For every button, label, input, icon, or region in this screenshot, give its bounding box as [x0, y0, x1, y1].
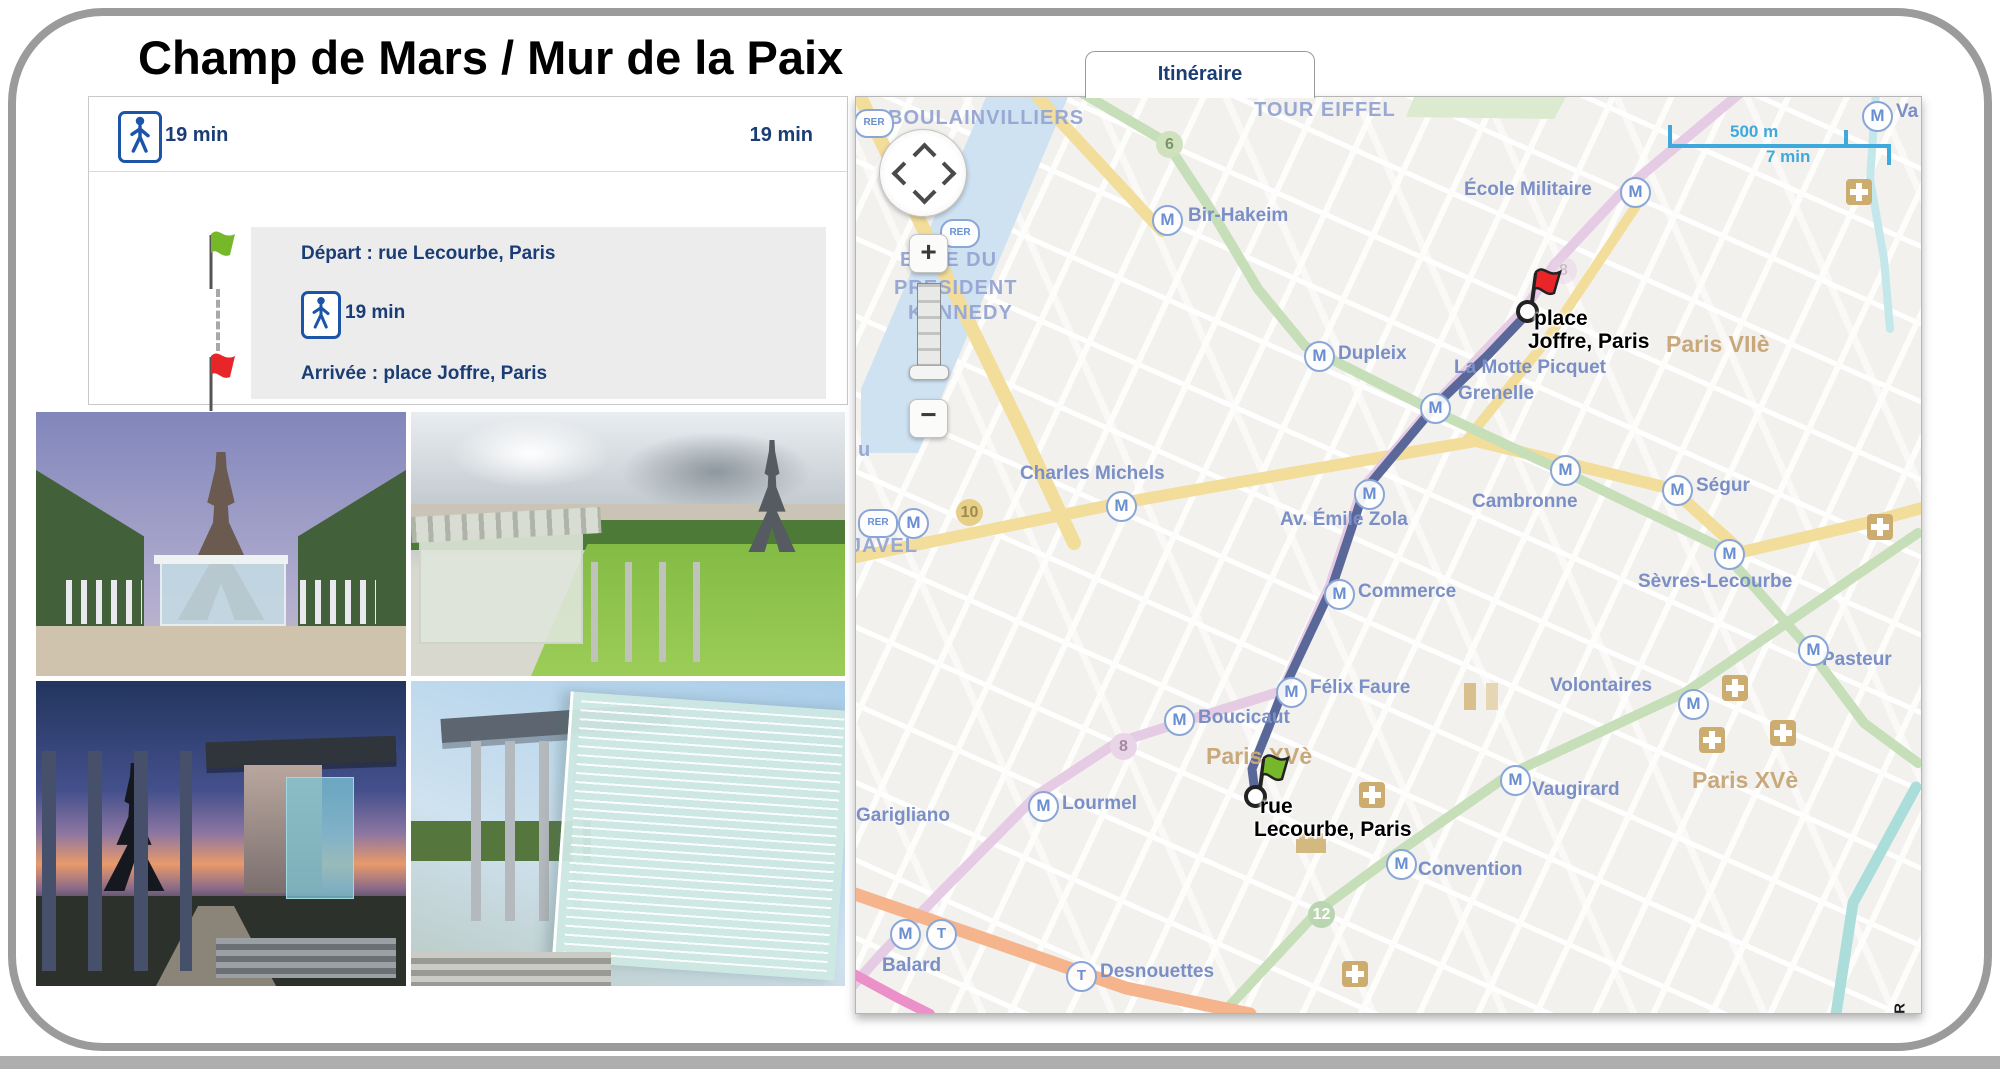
arrival-marker-label-line2: Joffre, Paris	[1528, 330, 1649, 354]
photo-wall-of-peace-glass-closeup	[411, 681, 845, 986]
rer-badge[interactable]: RER	[858, 509, 898, 538]
departure-marker-label-line1: rue	[1260, 795, 1293, 819]
station-label-bir-hakeim: Bir-Hakeim	[1188, 205, 1288, 227]
hospital-icon	[1770, 720, 1796, 746]
route-connector-line	[216, 289, 220, 351]
m-badge-vaugirard[interactable]: M	[1500, 765, 1531, 796]
rer-badge[interactable]: RER	[855, 109, 894, 138]
station-label-av-mile-zola: Av. Émile Zola	[1280, 509, 1408, 531]
columns-left	[66, 580, 142, 624]
ground	[36, 626, 406, 676]
map-copyright: ©STIF 2015, Données STIF, IGN BDTopo, IA…	[1892, 1003, 1909, 1014]
itinerary-summary-row[interactable]: 19 min 19 min	[89, 97, 847, 172]
m-badge-balard[interactable]: M	[890, 919, 921, 950]
slide: Champ de Mars / Mur de la Paix 19 min 19…	[0, 0, 2000, 1069]
columns-right	[300, 580, 376, 624]
m-badge--cole-militaire[interactable]: M	[1620, 177, 1651, 208]
m-badge-grenelle[interactable]: M	[1420, 393, 1451, 424]
itinerary-panel: 19 min 19 min Départ : rue Lecourbe, Par…	[88, 96, 848, 405]
photo-wall-of-peace-eiffel-front	[36, 412, 406, 676]
steel-columns	[591, 562, 711, 662]
itinerary-detail-box: Départ : rue Lecourbe, Paris 19 min Arri…	[251, 227, 826, 399]
metro-line-12-badge: 12	[1308, 901, 1335, 928]
poi-building-icon	[1464, 683, 1476, 710]
hospital-icon	[1867, 514, 1893, 540]
departure-marker-label-line2: Lecourbe, Paris	[1254, 818, 1412, 842]
station-label-boucicaut: Boucicaut	[1198, 707, 1290, 729]
engraved-glass-wall	[552, 691, 845, 980]
station-label-desnouettes: Desnouettes	[1100, 961, 1214, 983]
station-label-lourmel: Lourmel	[1062, 793, 1137, 815]
area-label-tour-eiffel: TOUR EIFFEL	[1254, 99, 1396, 122]
m-badge-s-vres-lecourbe[interactable]: M	[1714, 539, 1745, 570]
scale-time: 7 min	[1766, 147, 1810, 167]
metro-line-10-badge: 10	[956, 499, 983, 526]
station-label-grenelle: Grenelle	[1458, 383, 1534, 405]
district-label-paris-vii-: Paris VIIè	[1666, 331, 1770, 358]
arrival-flag-icon	[197, 349, 245, 413]
station-label-la-motte-picquet: La Motte Picquet	[1454, 357, 1606, 379]
m-badge-f-lix-faure[interactable]: M	[1276, 677, 1307, 708]
m-badge-charles-michels[interactable]: M	[1106, 491, 1137, 522]
station-label-charles-michels: Charles Michels	[1020, 463, 1165, 485]
pan-down-icon[interactable]	[912, 180, 936, 204]
glass-monument	[160, 560, 286, 626]
bottom-edge-bar	[0, 1056, 2000, 1069]
leg-duration: 19 min	[345, 302, 405, 324]
steps	[411, 952, 611, 986]
hospital-icon	[1846, 179, 1872, 205]
m-badge-commerce[interactable]: M	[1324, 579, 1355, 610]
glass-panel	[286, 777, 354, 899]
zoom-slider-track[interactable]	[917, 283, 941, 371]
map-scale-bar: 500 m 7 min	[1668, 123, 1891, 169]
hospital-icon	[1342, 961, 1368, 987]
metro-line-8-badge: 8	[1110, 733, 1137, 760]
station-label-s-vres-lecourbe: Sèvres-Lecourbe	[1638, 571, 1792, 593]
hospital-icon	[1699, 727, 1725, 753]
summary-total-duration: 19 min	[750, 124, 813, 147]
metro-line-6-badge: 6	[1156, 131, 1183, 158]
t-badge-desnouettes[interactable]: T	[1066, 961, 1097, 992]
area-label-president: PRESIDENT	[894, 277, 1017, 300]
station-label-volontaires: Volontaires	[1550, 675, 1652, 697]
pan-left-icon[interactable]	[891, 161, 915, 185]
m-badge[interactable]: M	[898, 508, 929, 539]
area-label-boulainvilliers: BOULAINVILLIERS	[888, 107, 1084, 130]
steps	[216, 938, 396, 978]
station-label-va: Va	[1896, 101, 1918, 123]
m-badge-cambronne[interactable]: M	[1550, 455, 1581, 486]
leg-pedestrian-icon	[301, 291, 341, 339]
pan-right-icon[interactable]	[932, 161, 956, 185]
photo-champ-de-mars-lawn	[411, 412, 845, 676]
m-badge-av-mile-zola[interactable]: M	[1354, 479, 1385, 510]
tab-itineraire[interactable]: Itinéraire	[1085, 51, 1315, 98]
m-badge-dupleix[interactable]: M	[1304, 341, 1335, 372]
summary-duration: 19 min	[165, 124, 228, 147]
station-label--cole-militaire: École Militaire	[1464, 179, 1592, 201]
zoom-slider-handle[interactable]	[909, 365, 949, 380]
scale-distance: 500 m	[1730, 122, 1778, 142]
monument-roof	[154, 555, 288, 564]
district-label-paris-xv-: Paris XVè	[1692, 767, 1798, 794]
t-badge-balard[interactable]: T	[926, 919, 957, 950]
m-badge-convention[interactable]: M	[1386, 849, 1417, 880]
map-pan-control[interactable]	[879, 129, 967, 217]
m-badge-bir-hakeim[interactable]: M	[1152, 205, 1183, 236]
pedestrian-icon	[118, 111, 162, 163]
area-label-u: u	[858, 439, 871, 462]
station-label-vaugirard: Vaugirard	[1532, 779, 1620, 801]
station-label-garigliano: Garigliano	[856, 805, 950, 827]
hospital-icon	[1359, 782, 1385, 808]
m-badge-s-gur[interactable]: M	[1662, 475, 1693, 506]
zoom-in-button[interactable]: +	[909, 234, 948, 273]
station-label-convention: Convention	[1418, 859, 1523, 881]
map-lines-layer	[856, 97, 1921, 1013]
station-label-pasteur: Pasteur	[1822, 649, 1892, 671]
zoom-out-button[interactable]: −	[909, 399, 948, 438]
m-badge-volontaires[interactable]: M	[1678, 689, 1709, 720]
station-label-commerce: Commerce	[1358, 581, 1456, 603]
station-label-cambronne: Cambronne	[1472, 491, 1578, 513]
m-badge-boucicaut[interactable]: M	[1164, 705, 1195, 736]
station-label-balard: Balard	[882, 955, 941, 977]
photo-wall-of-peace-dusk	[36, 681, 406, 986]
arrival-label: Arrivée : place Joffre, Paris	[301, 363, 547, 385]
m-badge-lourmel[interactable]: M	[1028, 791, 1059, 822]
arrival-marker-label-line1: place	[1534, 307, 1588, 331]
pan-up-icon[interactable]	[912, 142, 936, 166]
departure-label: Départ : rue Lecourbe, Paris	[301, 243, 555, 265]
station-label-f-lix-faure: Félix Faure	[1310, 677, 1410, 699]
hospital-icon	[1722, 675, 1748, 701]
departure-flag-icon	[197, 227, 245, 291]
station-label-s-gur: Ségur	[1696, 475, 1750, 497]
page-title: Champ de Mars / Mur de la Paix	[138, 30, 843, 85]
map-canvas[interactable]: + − 500 m 7 min place Joffre, Paris rue …	[855, 96, 1922, 1014]
station-label-dupleix: Dupleix	[1338, 343, 1407, 365]
columns-rows	[42, 751, 192, 971]
m-badge-pasteur[interactable]: M	[1798, 635, 1829, 666]
poi-building-icon	[1486, 683, 1498, 710]
